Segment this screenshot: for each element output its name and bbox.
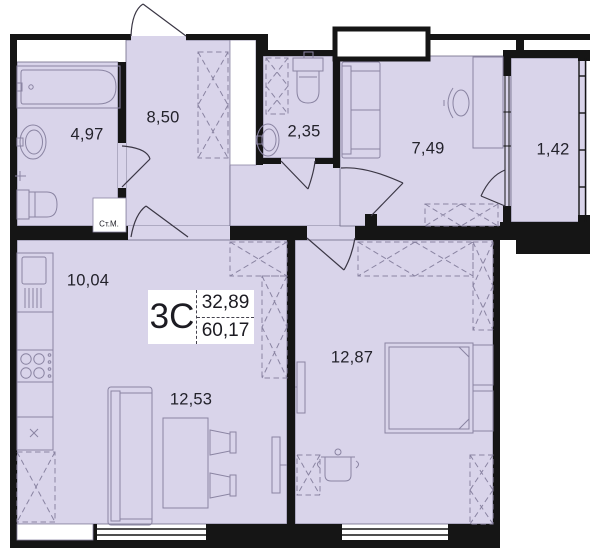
area-label-balcony: 1,42: [537, 141, 570, 160]
doorway-bedroom: [307, 226, 355, 240]
washing-machine-label: Ст.М.: [99, 220, 119, 229]
area-label-bedroom: 12,87: [331, 349, 373, 368]
room-bedroom: [295, 240, 493, 524]
area-label-hallway: 8,50: [147, 109, 180, 128]
bedroom-window: [342, 529, 448, 535]
doorway-bathroom: [118, 143, 126, 188]
area-label-kitchen: 10,04: [67, 272, 109, 291]
apartment-type-label: 3С: [148, 290, 196, 344]
wall-niche: [17, 524, 93, 540]
area-label-bathroom: 4,97: [71, 126, 104, 145]
area-label-living: 12,53: [170, 391, 212, 410]
apartment-areas: 32,89 60,17: [196, 290, 254, 344]
doorway-wc: [281, 158, 315, 164]
apartment-title-block: 3С 32,89 60,17: [148, 290, 254, 344]
area-label-small-room: 7,49: [412, 140, 445, 159]
total-area-value: 60,17: [197, 318, 254, 345]
exterior-wall-bump: [335, 29, 428, 59]
shaft-cavity: [230, 40, 256, 165]
entrance-door: [131, 4, 186, 36]
living-window: [97, 529, 206, 535]
doorway-corridor: [128, 226, 230, 240]
hallway-entrance-strip: [131, 36, 186, 41]
living-area-value: 32,89: [197, 290, 254, 318]
area-label-wc: 2,35: [288, 123, 321, 142]
floor-plan: 4,97 8,50 2,35 7,49 1,42 10,04 12,53 12,…: [0, 0, 600, 550]
